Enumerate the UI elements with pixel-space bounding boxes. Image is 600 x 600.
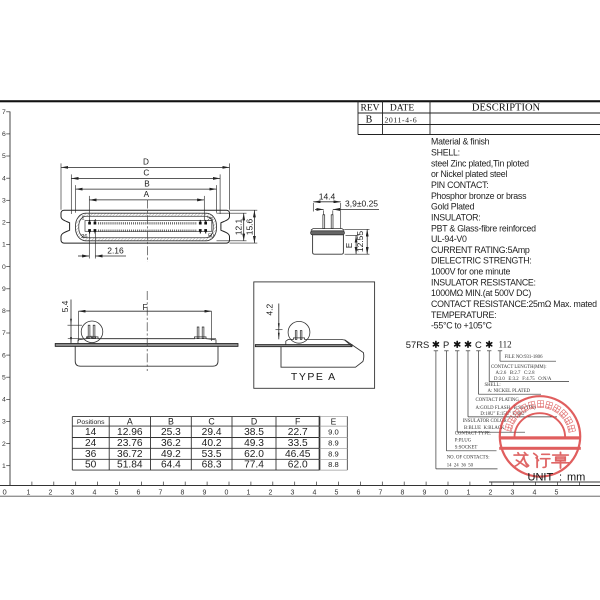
svg-text:53.5: 53.5 xyxy=(202,449,222,460)
svg-text:33.5: 33.5 xyxy=(288,438,308,449)
svg-text:14 24 36 50: 14 24 36 50 xyxy=(447,464,474,469)
svg-text:8.8: 8.8 xyxy=(328,460,339,469)
svg-text:1: 1 xyxy=(247,489,251,496)
svg-text:25: 25 xyxy=(207,217,213,223)
svg-text:4: 4 xyxy=(533,489,537,496)
svg-text:1: 1 xyxy=(27,489,31,496)
svg-text:Material & finish: Material & finish xyxy=(431,137,490,147)
svg-text:4: 4 xyxy=(2,397,6,404)
svg-text:Phosphor bronze or brass: Phosphor bronze or brass xyxy=(431,191,527,201)
svg-text:steel Zinc plated,Tin ploted: steel Zinc plated,Tin ploted xyxy=(431,158,529,168)
svg-text:CONTACT RESISTANCE:25mΩ Max. m: CONTACT RESISTANCE:25mΩ Max. mated xyxy=(431,299,597,309)
svg-text:14: 14 xyxy=(85,427,97,438)
svg-text:8.9: 8.9 xyxy=(328,438,339,447)
svg-text:8: 8 xyxy=(401,489,405,496)
svg-text:62.0: 62.0 xyxy=(288,460,308,471)
svg-text:29.4: 29.4 xyxy=(202,427,222,438)
svg-text::: : xyxy=(559,472,562,484)
svg-text:12.96: 12.96 xyxy=(117,427,143,438)
svg-text:3: 3 xyxy=(511,489,515,496)
svg-text:D:3.0 E:3.2 F:4.75 O:N/A: D:3.0 E:3.2 F:4.75 O:N/A xyxy=(494,377,552,382)
svg-text:7: 7 xyxy=(2,330,6,337)
svg-text:C: C xyxy=(475,339,482,350)
svg-text:14.4: 14.4 xyxy=(319,191,336,201)
svg-text:UNIT: UNIT xyxy=(528,472,554,484)
svg-text:1000V for one minute: 1000V for one minute xyxy=(431,267,510,277)
svg-text:PBT & Glass-fibre reinforced: PBT & Glass-fibre reinforced xyxy=(431,223,536,233)
svg-text:6: 6 xyxy=(357,489,361,496)
svg-text:A: A xyxy=(127,417,133,427)
svg-text:62.0: 62.0 xyxy=(244,449,264,460)
svg-text:CONTACT PLATING: CONTACT PLATING xyxy=(476,398,520,403)
svg-text:2: 2 xyxy=(2,220,6,227)
svg-text:5: 5 xyxy=(335,489,339,496)
svg-text:P:PLUG: P:PLUG xyxy=(455,439,472,444)
svg-text:3: 3 xyxy=(2,419,6,426)
svg-text:A: NICKEL PLATED: A: NICKEL PLATED xyxy=(488,389,531,394)
svg-text:PIN CONTACT:: PIN CONTACT: xyxy=(431,180,488,190)
svg-text:5.4: 5.4 xyxy=(60,300,70,312)
svg-text:0: 0 xyxy=(2,264,6,271)
svg-text:40.2: 40.2 xyxy=(202,438,222,449)
svg-text:D: D xyxy=(251,417,257,427)
svg-text:57RS: 57RS xyxy=(406,339,429,350)
svg-text:S:SOCKET: S:SOCKET xyxy=(455,446,478,451)
svg-text:2: 2 xyxy=(489,489,493,496)
svg-text:23.76: 23.76 xyxy=(117,438,143,449)
svg-text:C: C xyxy=(143,169,149,178)
svg-text:4.2: 4.2 xyxy=(265,304,275,316)
svg-text:0: 0 xyxy=(225,489,229,496)
svg-text:49.2: 49.2 xyxy=(161,449,181,460)
svg-text:D: D xyxy=(143,158,149,167)
svg-text:Gold Plated: Gold Plated xyxy=(431,202,475,212)
svg-text:P: P xyxy=(443,339,449,350)
svg-text:64.4: 64.4 xyxy=(161,460,181,471)
svg-text:TEMPERATURE:: TEMPERATURE: xyxy=(431,310,496,320)
svg-text:REV: REV xyxy=(361,104,380,114)
svg-text:Positions: Positions xyxy=(77,419,105,426)
svg-text:6: 6 xyxy=(2,131,6,138)
svg-text:68.3: 68.3 xyxy=(202,460,222,471)
svg-text:FILE NO:931-1806: FILE NO:931-1806 xyxy=(505,355,544,360)
svg-text:F: F xyxy=(143,303,148,312)
svg-text:38.5: 38.5 xyxy=(244,427,264,438)
svg-text:6: 6 xyxy=(137,489,141,496)
svg-text:2: 2 xyxy=(49,489,53,496)
svg-text:DATE: DATE xyxy=(390,104,414,114)
svg-text:8.9: 8.9 xyxy=(328,449,339,458)
svg-text:6: 6 xyxy=(2,352,6,359)
svg-text:CONTACT TYPE:: CONTACT TYPE: xyxy=(455,432,492,437)
svg-text:UL-94-V0: UL-94-V0 xyxy=(431,234,467,244)
svg-text:77.4: 77.4 xyxy=(244,460,264,471)
svg-text:B: B xyxy=(168,417,174,427)
svg-text:B:BLUE K:BLACK: B:BLUE K:BLACK xyxy=(464,426,505,431)
svg-text:9: 9 xyxy=(2,286,6,293)
svg-text:50: 50 xyxy=(208,233,214,239)
svg-text:5: 5 xyxy=(115,489,119,496)
svg-text:-55°C to +105°C: -55°C to +105°C xyxy=(431,321,493,331)
svg-text:NO. OF CONTACTS:: NO. OF CONTACTS: xyxy=(447,455,490,460)
svg-text:1000MΩ MIN.(at 500V DC): 1000MΩ MIN.(at 500V DC) xyxy=(431,288,531,298)
svg-text:2011-4-6: 2011-4-6 xyxy=(385,116,418,125)
svg-text:8: 8 xyxy=(2,308,6,315)
svg-text:or Nickel plated steel: or Nickel plated steel xyxy=(431,169,507,179)
svg-text:B: B xyxy=(366,114,373,125)
svg-text:46.45: 46.45 xyxy=(285,449,311,460)
svg-text:4: 4 xyxy=(2,175,6,182)
svg-text:12.55: 12.55 xyxy=(355,231,365,253)
svg-text:E: E xyxy=(345,243,354,248)
svg-text:A:2.6 B:2.7 C:2.8: A:2.6 B:2.7 C:2.8 xyxy=(496,371,536,376)
svg-text:9.0: 9.0 xyxy=(328,428,339,437)
svg-text:49.3: 49.3 xyxy=(244,438,264,449)
svg-text:SHELL:: SHELL: xyxy=(485,383,501,388)
svg-text:CURRENT RATING:5Amp: CURRENT RATING:5Amp xyxy=(431,245,530,255)
svg-text:36.72: 36.72 xyxy=(117,449,143,460)
svg-text:3: 3 xyxy=(2,198,6,205)
svg-text:INSULATOR:: INSULATOR: xyxy=(431,212,480,222)
svg-text:7: 7 xyxy=(379,489,383,496)
svg-text:2.16: 2.16 xyxy=(107,246,124,256)
svg-text:0: 0 xyxy=(3,487,7,496)
svg-text:mm: mm xyxy=(567,472,585,484)
svg-text:TYPE A: TYPE A xyxy=(291,371,337,383)
svg-text:15.6: 15.6 xyxy=(244,218,254,235)
svg-text:2: 2 xyxy=(2,441,6,448)
svg-text:36: 36 xyxy=(85,449,97,460)
svg-text:1: 1 xyxy=(2,242,6,249)
svg-text:9: 9 xyxy=(203,489,207,496)
svg-text:A: A xyxy=(144,190,150,199)
svg-text:7: 7 xyxy=(159,489,163,496)
svg-text:1: 1 xyxy=(467,489,471,496)
svg-text:B: B xyxy=(144,179,150,188)
svg-text:CONTACT LENGTH(MM):: CONTACT LENGTH(MM): xyxy=(491,365,547,370)
svg-text:C: C xyxy=(208,417,215,427)
svg-text:1: 1 xyxy=(81,216,84,222)
svg-text:4: 4 xyxy=(313,489,317,496)
svg-text:E: E xyxy=(331,416,337,426)
svg-text:25.3: 25.3 xyxy=(161,427,181,438)
svg-text:1: 1 xyxy=(2,463,6,470)
svg-text:DESCRIPTION: DESCRIPTION xyxy=(472,102,541,113)
svg-text:2: 2 xyxy=(269,489,273,496)
svg-text:50: 50 xyxy=(85,460,97,471)
svg-text:26: 26 xyxy=(81,234,87,240)
svg-text:3: 3 xyxy=(291,489,295,496)
svg-text:4: 4 xyxy=(93,489,97,496)
svg-text:9: 9 xyxy=(423,489,427,496)
svg-text:51.84: 51.84 xyxy=(117,460,143,471)
svg-text:36.2: 36.2 xyxy=(161,438,181,449)
svg-text:5: 5 xyxy=(2,374,6,381)
svg-text:22.7: 22.7 xyxy=(288,427,308,438)
svg-text:0: 0 xyxy=(445,489,449,496)
svg-text:INSULATOR RESISTANCE:: INSULATOR RESISTANCE: xyxy=(431,277,536,287)
svg-text:DIELECTRIC STRENGTH:: DIELECTRIC STRENGTH: xyxy=(431,256,532,266)
svg-text:24: 24 xyxy=(85,438,97,449)
svg-text:8: 8 xyxy=(181,489,185,496)
svg-text:112: 112 xyxy=(499,340,512,350)
svg-text:5: 5 xyxy=(2,153,6,160)
svg-text:3,9±0.25: 3,9±0.25 xyxy=(345,199,378,209)
svg-text:5: 5 xyxy=(555,489,559,496)
svg-text:SHELL:: SHELL: xyxy=(431,148,460,158)
svg-text:F: F xyxy=(295,417,301,427)
svg-text:3: 3 xyxy=(71,489,75,496)
svg-text:12.1: 12.1 xyxy=(234,218,244,235)
svg-text:7: 7 xyxy=(2,109,6,116)
